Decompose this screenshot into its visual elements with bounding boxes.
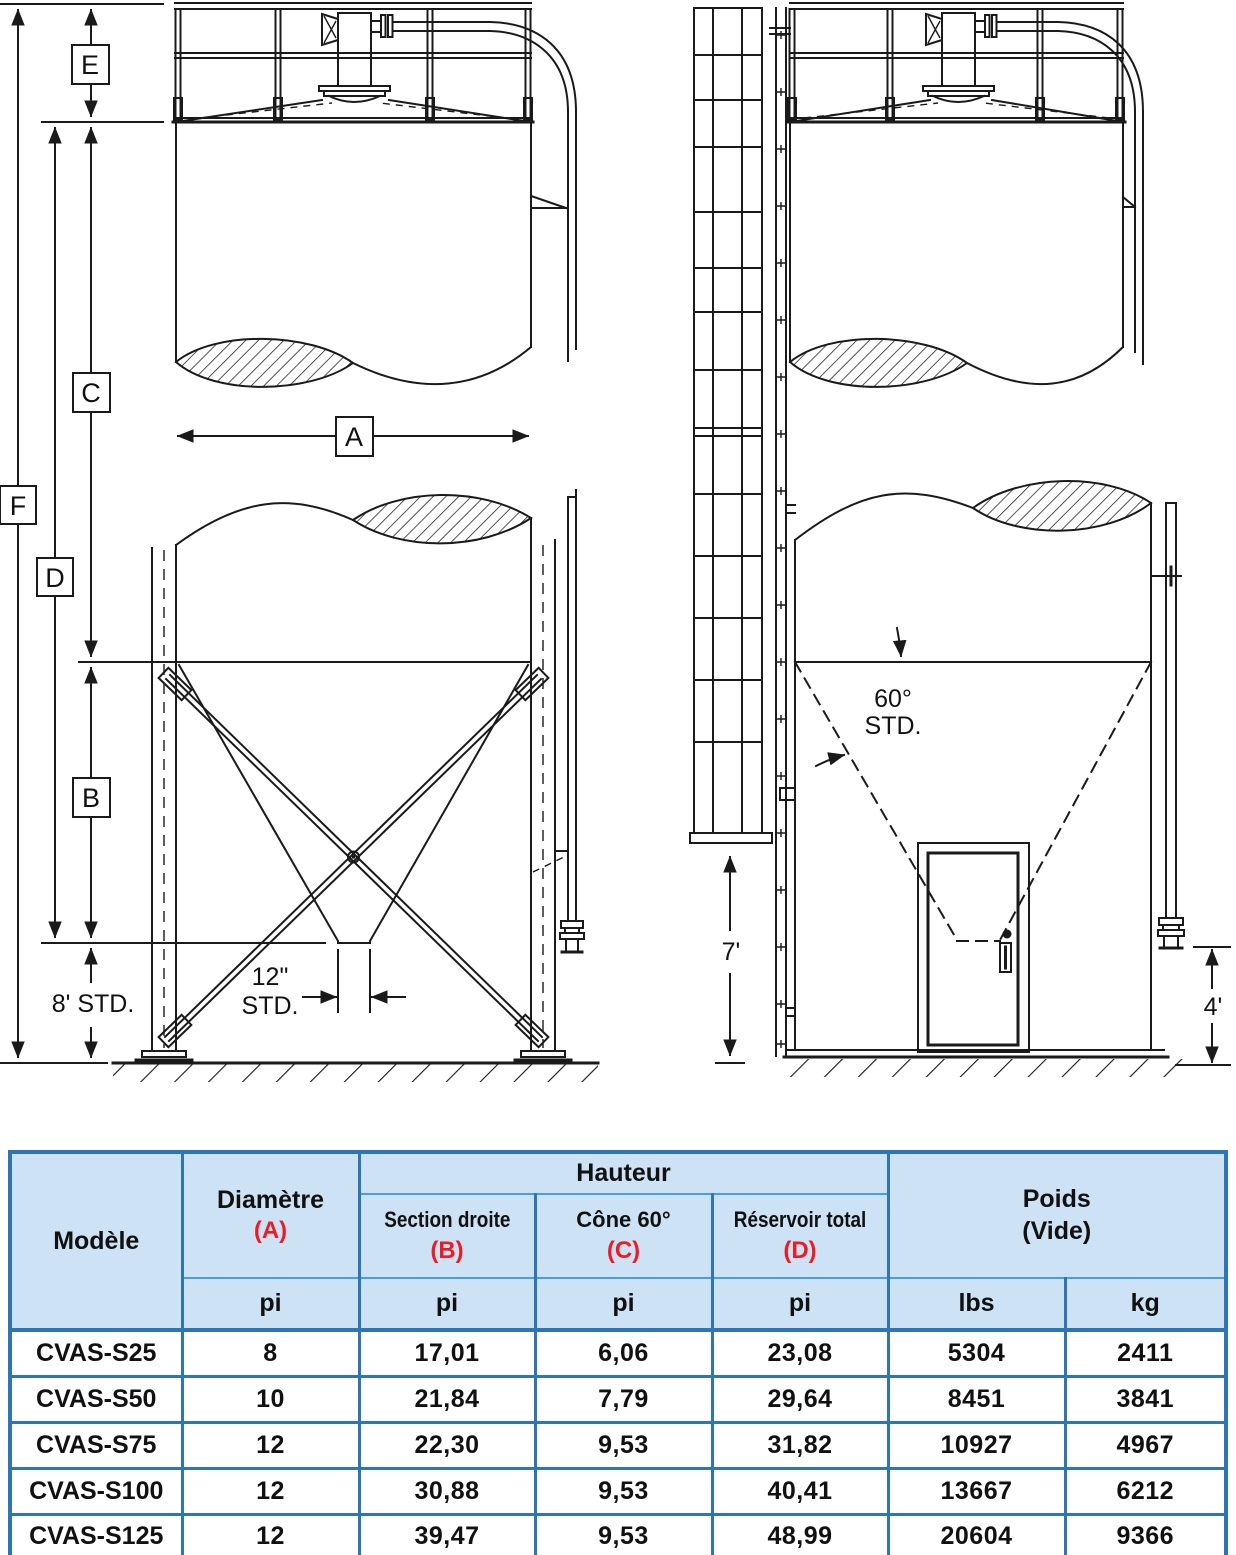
weight-kg-value: 2411 <box>1065 1330 1226 1376</box>
front-fill-pipe-upper <box>393 22 576 361</box>
straight-value: 17,01 <box>359 1330 535 1376</box>
model-name: CVAS-S125 <box>10 1514 182 1555</box>
access-door <box>918 843 1029 1052</box>
diameter-value: 8 <box>182 1330 359 1376</box>
front-tank-lower <box>176 495 531 662</box>
dim-label-e: E <box>81 50 99 80</box>
straight-section-label: Section droite <box>384 1206 510 1235</box>
ladder-clearance-label: 7' <box>722 938 741 966</box>
diameter-value: 12 <box>182 1468 359 1514</box>
cone-angle-note-1: 60° <box>874 685 912 713</box>
front-cone <box>179 665 528 943</box>
unit-lbs: lbs <box>888 1278 1065 1330</box>
weight-label-1: Poids <box>890 1184 1224 1215</box>
weight-label-2: (Vide) <box>890 1216 1224 1247</box>
table-row: CVAS-S100 12 30,88 9,53 40,41 13667 6212 <box>10 1468 1226 1514</box>
col-header-total: Réservoir total (D) <box>712 1194 888 1278</box>
col-header-straight-section: Section droite (B) <box>359 1194 535 1278</box>
front-ground <box>113 1063 598 1082</box>
weight-kg-value: 9366 <box>1065 1514 1226 1555</box>
skirt-height-note: 8' STD. <box>52 990 135 1018</box>
pipe-clearance-label: 4' <box>1204 993 1223 1021</box>
total-label: Réservoir total <box>734 1206 866 1235</box>
weight-kg-value: 3841 <box>1065 1376 1226 1422</box>
ladder-clearance-dimension: 7' <box>716 857 744 1063</box>
weight-lbs-value: 20604 <box>888 1514 1065 1555</box>
col-header-diameter: Diamètre (A) <box>182 1152 359 1278</box>
model-name: CVAS-S25 <box>10 1330 182 1376</box>
total-value: 29,64 <box>712 1376 888 1422</box>
straight-value: 39,47 <box>359 1514 535 1555</box>
dim-label-d: D <box>45 563 65 593</box>
table-row: CVAS-S75 12 22,30 9,53 31,82 10927 4967 <box>10 1422 1226 1468</box>
straight-value: 30,88 <box>359 1468 535 1514</box>
table-row: CVAS-S125 12 39,47 9,53 48,99 20604 9366 <box>10 1514 1226 1555</box>
side-tank-lower <box>795 481 1151 1050</box>
col-header-cone: Cône 60° (C) <box>535 1194 712 1278</box>
col-header-model-label: Modèle <box>53 1227 139 1255</box>
straight-value: 21,84 <box>359 1376 535 1422</box>
outlet-width-note-2: STD. <box>242 992 299 1020</box>
cone-angle-note-2: STD. <box>865 712 922 740</box>
total-ref: (D) <box>714 1235 887 1266</box>
group-header-height: Hauteur <box>359 1152 888 1194</box>
front-guardrail <box>173 3 533 122</box>
cone-label: Cône 60° <box>537 1206 711 1235</box>
straight-section-ref: (B) <box>361 1235 534 1266</box>
spec-table: Modèle Diamètre (A) Hauteur Poids (Vide)… <box>8 1150 1228 1555</box>
side-ladder-cage <box>690 8 795 1056</box>
pipe-clearance-dimension: 4' <box>1176 947 1230 1065</box>
total-value: 23,08 <box>712 1330 888 1376</box>
outlet-width-note-1: 12" <box>252 963 289 991</box>
front-legs <box>136 518 571 1060</box>
dim-label-f: F <box>10 491 27 521</box>
cone-angle-annotation: 60° STD. <box>816 628 921 766</box>
cone-value: 9,53 <box>535 1468 712 1514</box>
total-value: 31,82 <box>712 1422 888 1468</box>
silo-technical-drawing: .s2{stroke:#1a1a1a;stroke-width:2;fill:n… <box>0 0 1236 1095</box>
weight-lbs-value: 13667 <box>888 1468 1065 1514</box>
unit-diameter: pi <box>182 1278 359 1330</box>
front-fill-pipe-lower <box>533 490 584 952</box>
unit-cone: pi <box>535 1278 712 1330</box>
side-fill-pipe-upper <box>997 22 1143 364</box>
total-value: 40,41 <box>712 1468 888 1514</box>
diameter-value: 10 <box>182 1376 359 1422</box>
table-row: CVAS-S50 10 21,84 7,79 29,64 8451 3841 <box>10 1376 1226 1422</box>
diameter-label: Diamètre <box>184 1185 358 1216</box>
front-cross-bracing <box>159 668 549 1047</box>
weight-kg-value: 6212 <box>1065 1468 1226 1514</box>
unit-kg: kg <box>1065 1278 1226 1330</box>
silo-spec-sheet: .s2{stroke:#1a1a1a;stroke-width:2;fill:n… <box>0 0 1236 1555</box>
weight-lbs-value: 5304 <box>888 1330 1065 1376</box>
model-name: CVAS-S50 <box>10 1376 182 1422</box>
col-header-model: Modèle <box>10 1152 182 1330</box>
dim-label-c: C <box>81 378 101 408</box>
unit-straight: pi <box>359 1278 535 1330</box>
group-header-weight: Poids (Vide) <box>888 1152 1226 1278</box>
unit-total: pi <box>712 1278 888 1330</box>
cone-value: 6,06 <box>535 1330 712 1376</box>
cone-ref: (C) <box>537 1235 711 1266</box>
front-view-drawing: E C F D B A 8' STD. 12" STD. <box>0 3 598 1082</box>
side-view-drawing: 60° STD. 7' <box>690 3 1230 1077</box>
side-roof-and-vent <box>790 13 1123 122</box>
side-guardrail <box>770 3 1125 122</box>
table-row: CVAS-S25 8 17,01 6,06 23,08 5304 2411 <box>10 1330 1226 1376</box>
front-extension-lines <box>0 4 325 1063</box>
dim-label-b: B <box>82 783 100 813</box>
model-name: CVAS-S75 <box>10 1422 182 1468</box>
weight-lbs-value: 10927 <box>888 1422 1065 1468</box>
side-ground <box>784 1050 1184 1077</box>
front-tank-upper <box>176 122 531 387</box>
cone-value: 9,53 <box>535 1422 712 1468</box>
total-value: 48,99 <box>712 1514 888 1555</box>
front-roof-and-vent <box>176 13 531 122</box>
door-lock-icon <box>1003 930 1012 939</box>
diameter-value: 12 <box>182 1514 359 1555</box>
side-tank-upper <box>790 122 1123 387</box>
model-name: CVAS-S100 <box>10 1468 182 1514</box>
cone-value: 9,53 <box>535 1514 712 1555</box>
diameter-value: 12 <box>182 1422 359 1468</box>
straight-value: 22,30 <box>359 1422 535 1468</box>
weight-kg-value: 4967 <box>1065 1422 1226 1468</box>
height-group-label: Hauteur <box>576 1159 670 1187</box>
cone-value: 7,79 <box>535 1376 712 1422</box>
side-fill-pipe-lower <box>1151 503 1184 948</box>
diameter-ref: (A) <box>184 1216 358 1246</box>
weight-lbs-value: 8451 <box>888 1376 1065 1422</box>
dim-label-a: A <box>345 422 363 452</box>
